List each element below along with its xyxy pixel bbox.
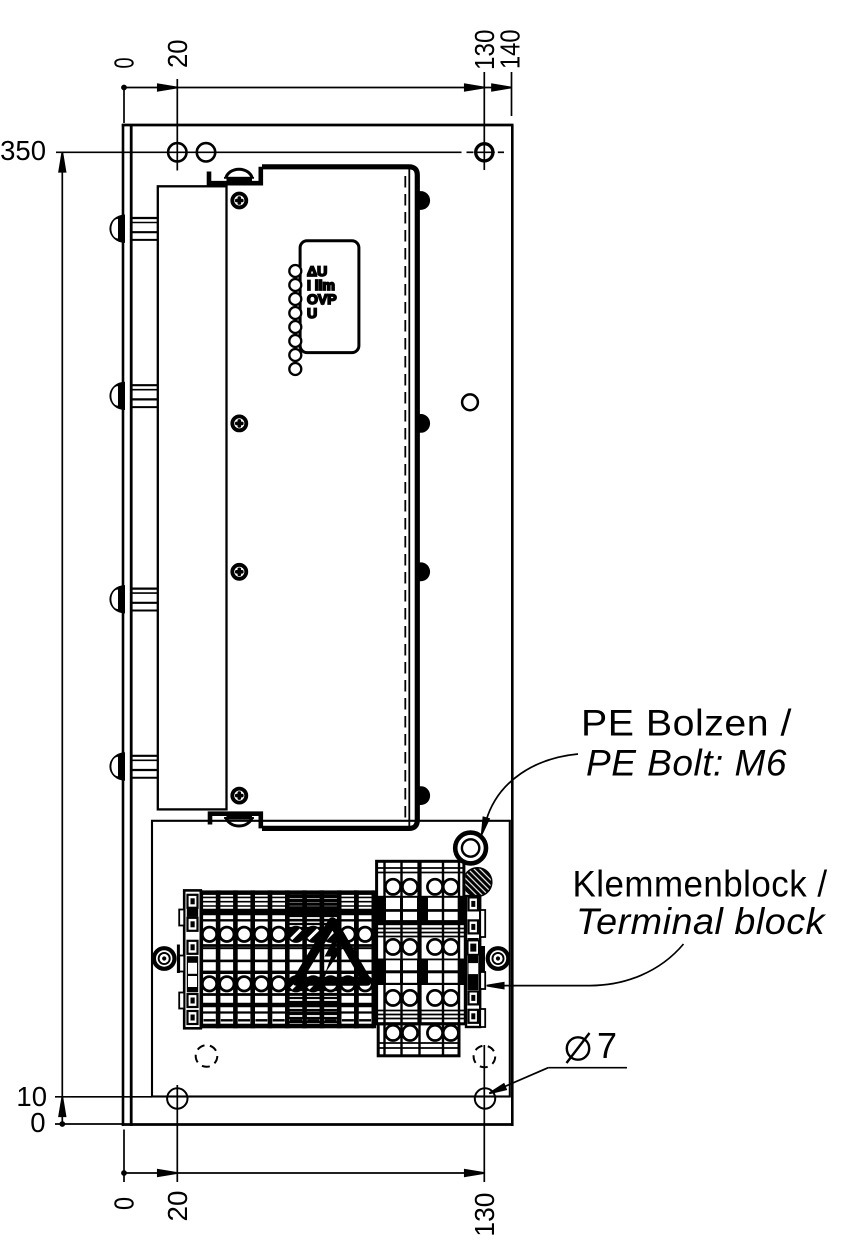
svg-text:U: U — [307, 305, 317, 321]
svg-text:PE Bolzen /: PE Bolzen / — [581, 702, 792, 743]
svg-text:PE Bolt: M6: PE Bolt: M6 — [586, 743, 787, 784]
svg-text:20: 20 — [162, 1191, 193, 1222]
svg-text:Klemmenblock /: Klemmenblock / — [573, 864, 828, 905]
svg-text:0: 0 — [109, 1197, 140, 1210]
svg-text:Terminal block: Terminal block — [576, 901, 827, 942]
svg-text:0: 0 — [30, 1107, 45, 1138]
svg-text:7: 7 — [597, 1025, 617, 1066]
svg-text:350: 350 — [0, 135, 46, 166]
svg-text:20: 20 — [162, 40, 193, 69]
svg-text:140: 140 — [494, 30, 525, 70]
svg-text:130: 130 — [469, 1193, 500, 1237]
svg-text:0: 0 — [109, 58, 140, 69]
